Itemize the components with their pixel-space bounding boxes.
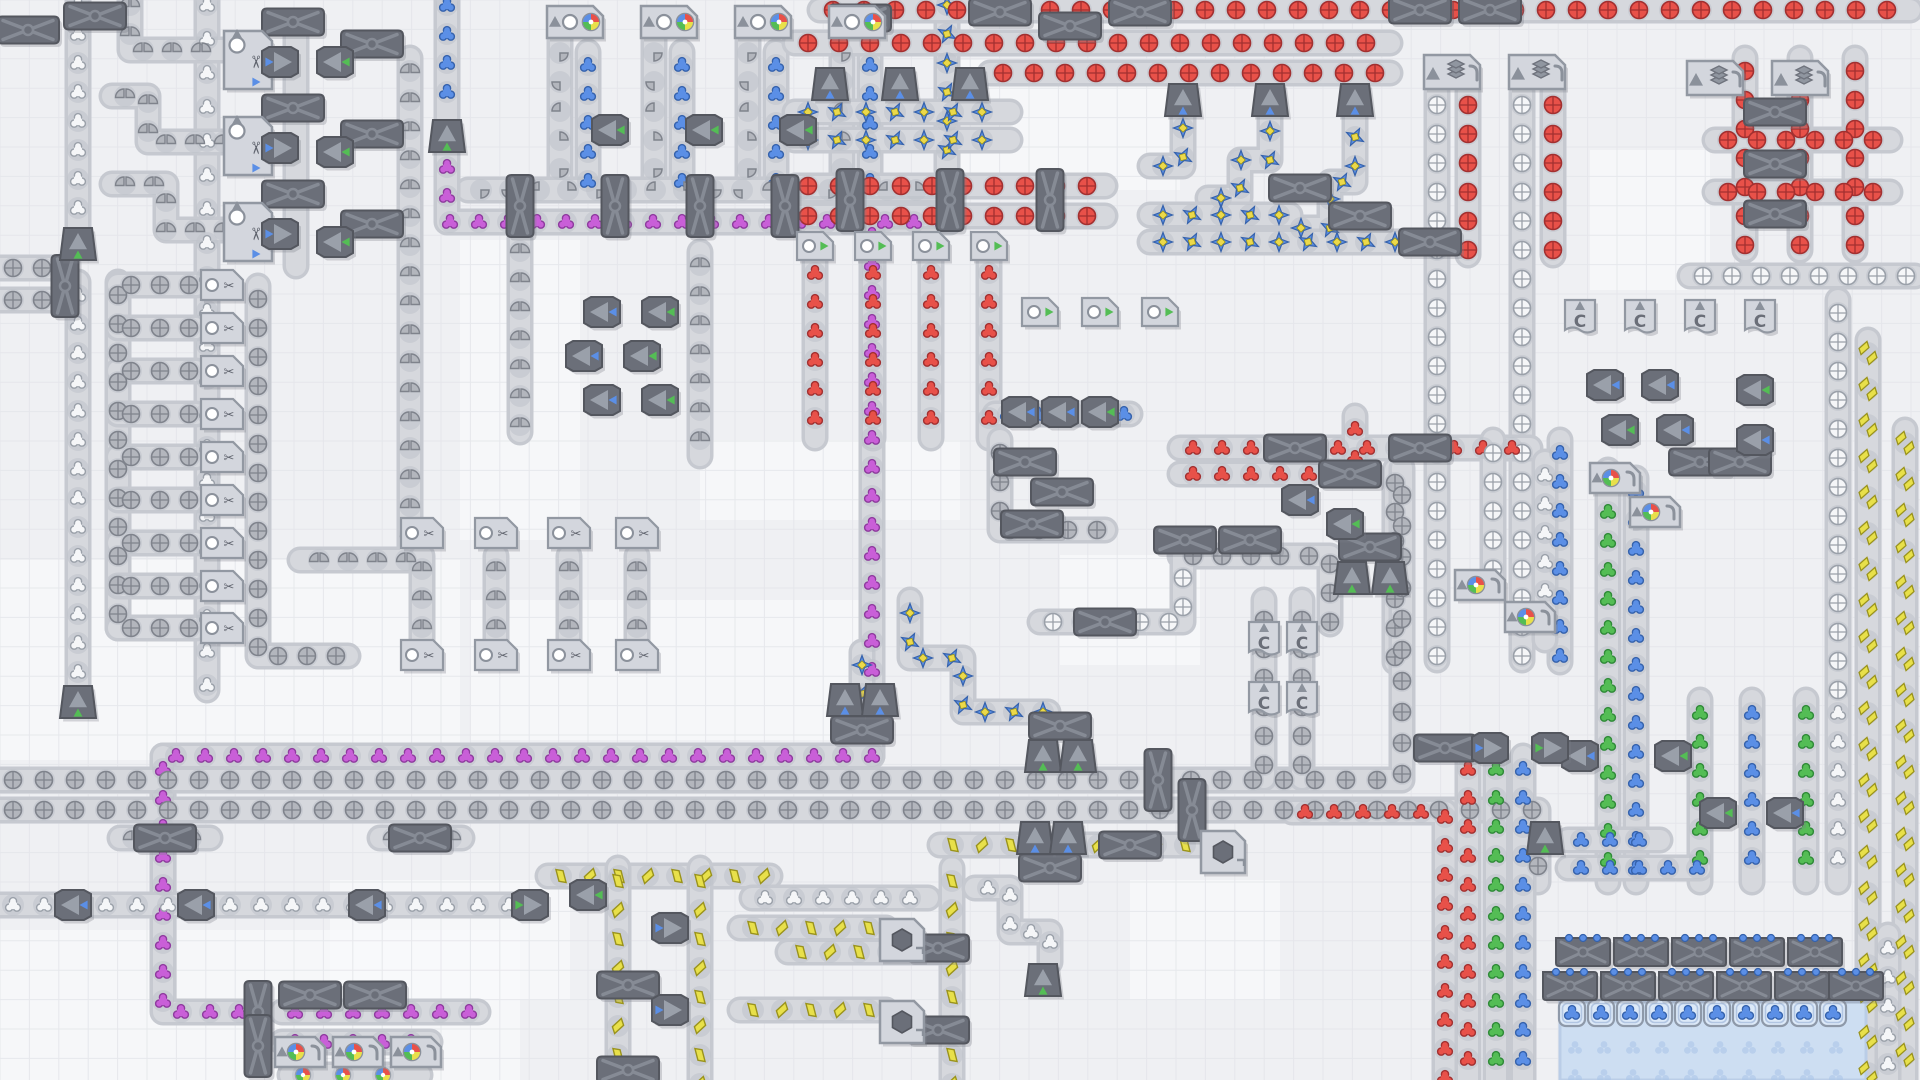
machine-tunnel[interactable] — [862, 684, 901, 720]
machine-stacker[interactable] — [1772, 61, 1831, 99]
machine-balancer[interactable] — [994, 449, 1059, 480]
svg-text:✂: ✂ — [571, 649, 582, 664]
machine-cutter-small[interactable]: ✂ — [201, 613, 246, 647]
machine-balancer[interactable] — [831, 717, 896, 748]
machine-tunnel[interactable] — [827, 684, 866, 720]
machine-cutter-small[interactable]: ✂ — [201, 399, 246, 433]
machine-filter[interactable] — [1532, 733, 1571, 767]
fluid-cell[interactable] — [1675, 1000, 1701, 1026]
machine-filter[interactable] — [1657, 415, 1696, 449]
machine-cutter-small[interactable]: ✂ — [201, 528, 246, 562]
machine-painter-gem[interactable] — [333, 1037, 386, 1071]
svg-text:✂: ✂ — [224, 580, 235, 595]
machine-balancer[interactable] — [1744, 201, 1809, 232]
machine-pump[interactable] — [1659, 969, 1716, 1004]
machine-balancer[interactable] — [279, 982, 344, 1013]
machine-painter-gem[interactable] — [1590, 463, 1643, 497]
machine-balancer[interactable] — [1109, 0, 1174, 29]
machine-pump[interactable] — [1730, 935, 1787, 970]
svg-text:C: C — [1694, 312, 1706, 332]
machine-cutter-small[interactable]: ✂ — [201, 356, 246, 390]
machine-balancer[interactable] — [1459, 0, 1524, 27]
machine-balancer[interactable] — [1039, 13, 1104, 44]
machine-filter[interactable] — [317, 137, 356, 171]
machine-balancer[interactable] — [969, 0, 1034, 29]
machine-crystal-generator[interactable] — [880, 919, 927, 965]
machine-painter[interactable] — [829, 6, 888, 42]
machine-balancer[interactable] — [1029, 713, 1094, 744]
machine-filter[interactable] — [584, 297, 623, 331]
machine-painter-gem[interactable] — [1455, 570, 1508, 604]
svg-text:C: C — [1754, 312, 1766, 332]
svg-text:✂: ✂ — [498, 649, 509, 664]
machine-tunnel[interactable] — [812, 68, 851, 104]
machine-balancer[interactable] — [507, 175, 537, 241]
machine-filter[interactable] — [512, 890, 551, 924]
machine-stacker[interactable] — [1687, 61, 1746, 99]
svg-text:C: C — [1258, 634, 1270, 654]
machine-trash[interactable] — [429, 120, 468, 156]
machine-stacker[interactable] — [1509, 55, 1568, 93]
svg-text:✂: ✂ — [571, 527, 582, 542]
machine-painter-gem[interactable] — [1630, 497, 1683, 531]
machine-balancer[interactable] — [1219, 527, 1284, 558]
machine-balancer[interactable] — [1744, 151, 1809, 182]
machine-filter[interactable] — [1327, 509, 1366, 543]
machine-balancer[interactable] — [837, 169, 867, 235]
machine-tunnel[interactable] — [1252, 84, 1291, 120]
light-patch — [700, 440, 960, 520]
fluid-cell[interactable] — [1791, 1000, 1817, 1026]
machine-cutter-small[interactable]: ✂ — [201, 313, 246, 347]
machine-balancer[interactable] — [602, 175, 632, 241]
svg-text:C: C — [1574, 312, 1586, 332]
factory-map[interactable]: ✂ ✂ ✂ ✂ ✂ ✂ ✂ ✂ ✂ ✂ ✂ ✂ — [0, 0, 1920, 1080]
machine-balancer[interactable] — [1414, 735, 1479, 766]
machine-filter[interactable] — [642, 385, 681, 419]
machine-filter[interactable] — [1737, 425, 1776, 459]
machine-balancer[interactable] — [937, 169, 967, 235]
machine-cutter-small[interactable]: ✂ — [616, 518, 661, 552]
machine-pump[interactable] — [1543, 969, 1600, 1004]
machine-balancer[interactable] — [1269, 175, 1334, 206]
machine-balancer[interactable] — [262, 181, 327, 212]
machine-cutter-small[interactable]: ✂ — [401, 640, 446, 674]
machine-rotator[interactable]: C — [1249, 682, 1282, 718]
machine-painter-gem[interactable] — [1505, 602, 1558, 636]
machine-filter[interactable] — [624, 341, 663, 375]
machine-filter[interactable] — [55, 890, 94, 924]
machine-filter[interactable] — [1700, 798, 1739, 832]
machine-cutter-small[interactable]: ✂ — [548, 518, 593, 552]
fluid-cell[interactable] — [1559, 1000, 1585, 1026]
machine-filter[interactable] — [1642, 370, 1681, 404]
machine-rotator[interactable]: C — [1287, 682, 1320, 718]
machine-balancer[interactable] — [1037, 169, 1067, 235]
svg-text:✂: ✂ — [639, 649, 650, 664]
machine-filter[interactable] — [1282, 485, 1321, 519]
machine-balancer[interactable] — [1001, 511, 1066, 542]
machine-painter-gem[interactable] — [391, 1037, 444, 1071]
machine-filter[interactable] — [317, 47, 356, 81]
game-viewport[interactable]: ✂ ✂ ✂ ✂ ✂ ✂ ✂ ✂ ✂ ✂ ✂ ✂ — [0, 0, 1920, 1080]
fluid-cell[interactable] — [1704, 1000, 1730, 1026]
machine-tunnel[interactable] — [1165, 84, 1204, 120]
machine-filter[interactable] — [652, 913, 691, 947]
machine-cutter-small[interactable]: ✂ — [616, 640, 661, 674]
machine-tunnel[interactable] — [952, 68, 991, 104]
machine-balancer[interactable] — [0, 17, 62, 48]
machine-rotator[interactable]: C — [1287, 622, 1320, 658]
machine-balancer[interactable] — [1389, 435, 1454, 466]
machine-filter[interactable] — [317, 227, 356, 261]
machine-balancer[interactable] — [597, 972, 662, 1003]
svg-text:C: C — [1634, 312, 1646, 332]
machine-filter[interactable] — [1472, 733, 1511, 767]
machine-filter[interactable] — [592, 115, 631, 149]
machine-balancer[interactable] — [1399, 229, 1464, 260]
machine-balancer[interactable] — [344, 982, 409, 1013]
svg-text:✂: ✂ — [224, 322, 235, 337]
svg-text:✂: ✂ — [224, 365, 235, 380]
svg-text:C: C — [1296, 694, 1308, 714]
machine-cutter-small[interactable]: ✂ — [475, 518, 520, 552]
machine-crystal-generator[interactable] — [1201, 831, 1248, 877]
machine-painter-gem[interactable] — [275, 1037, 328, 1071]
machine-balancer[interactable] — [1145, 749, 1175, 815]
machine-balancer[interactable] — [1019, 855, 1084, 886]
machine-tunnel[interactable] — [1025, 740, 1064, 776]
machine-balancer[interactable] — [64, 3, 129, 34]
svg-text:✂: ✂ — [224, 622, 235, 637]
machine-balancer[interactable] — [1031, 479, 1096, 510]
machine-balancer[interactable] — [1264, 435, 1329, 466]
machine-cutter-small[interactable]: ✂ — [475, 640, 520, 674]
machine-cutter-small[interactable]: ✂ — [201, 270, 246, 304]
machine-balancer[interactable] — [134, 825, 199, 856]
machine-filter[interactable] — [1655, 741, 1694, 775]
machine-rotator[interactable]: C — [1565, 300, 1598, 336]
machine-filter[interactable] — [262, 133, 301, 167]
machine-pump[interactable] — [1672, 935, 1729, 970]
machine-pump[interactable] — [1614, 935, 1671, 970]
machine-filter[interactable] — [566, 341, 605, 375]
machine-balancer[interactable] — [389, 825, 454, 856]
light-patch — [470, 600, 870, 740]
machine-cutter-small[interactable]: ✂ — [201, 442, 246, 476]
machine-balancer[interactable] — [262, 95, 327, 126]
machine-balancer[interactable] — [1389, 0, 1454, 27]
machine-pump[interactable] — [1717, 969, 1774, 1004]
machine-balancer[interactable] — [1744, 99, 1809, 130]
machine-filter[interactable] — [1767, 798, 1806, 832]
machine-tunnel[interactable] — [1050, 822, 1089, 858]
fluid-cell[interactable] — [1733, 1000, 1759, 1026]
svg-text:✂: ✂ — [498, 527, 509, 542]
machine-filter[interactable] — [1002, 397, 1041, 431]
machine-balancer[interactable] — [1154, 527, 1219, 558]
machine-filter[interactable] — [262, 219, 301, 253]
fluid-cell[interactable] — [1762, 1000, 1788, 1026]
machine-pump[interactable] — [1775, 969, 1832, 1004]
fluid-cell[interactable] — [1646, 1000, 1672, 1026]
svg-text:✂: ✂ — [224, 537, 235, 552]
machine-balancer[interactable] — [1099, 832, 1164, 863]
machine-cutter-small[interactable]: ✂ — [548, 640, 593, 674]
svg-text:✂: ✂ — [224, 279, 235, 294]
svg-text:✂: ✂ — [639, 527, 650, 542]
machine-crystal-generator[interactable] — [880, 1001, 927, 1047]
machine-filter[interactable] — [570, 880, 609, 914]
machine-trash[interactable] — [1334, 562, 1373, 598]
machine-pump[interactable] — [1601, 969, 1658, 1004]
svg-text:C: C — [1296, 634, 1308, 654]
machine-tunnel[interactable] — [882, 68, 921, 104]
machine-painter[interactable] — [547, 6, 606, 42]
machine-tunnel[interactable] — [1337, 84, 1376, 120]
machine-cutter-small[interactable]: ✂ — [201, 485, 246, 519]
machine-pump[interactable] — [1788, 935, 1845, 970]
machine-filter[interactable] — [1602, 415, 1641, 449]
machine-rotator[interactable]: C — [1685, 300, 1718, 336]
svg-text:✂: ✂ — [224, 494, 235, 509]
machine-tunnel[interactable] — [1060, 740, 1099, 776]
machine-pump[interactable] — [1829, 969, 1886, 1004]
machine-filter[interactable] — [780, 115, 819, 149]
machine-filter[interactable] — [178, 890, 217, 924]
fluid-cell[interactable] — [1617, 1000, 1643, 1026]
machine-trash[interactable] — [60, 686, 99, 722]
svg-text:✂: ✂ — [224, 451, 235, 466]
machine-trash[interactable] — [1372, 562, 1411, 598]
machine-filter[interactable] — [1082, 397, 1121, 431]
machine-trash[interactable] — [60, 228, 99, 264]
machine-filter[interactable] — [1587, 370, 1626, 404]
machine-painter[interactable] — [641, 6, 700, 42]
machine-filter[interactable] — [652, 995, 691, 1029]
machine-filter[interactable] — [686, 115, 725, 149]
machine-cutter-small[interactable]: ✂ — [401, 518, 446, 552]
machine-balancer[interactable] — [772, 175, 802, 241]
machine-pump[interactable] — [1556, 935, 1613, 970]
machine-trash[interactable] — [1025, 964, 1064, 1000]
svg-text:✂: ✂ — [224, 408, 235, 423]
machine-filter[interactable] — [1737, 375, 1776, 409]
svg-text:✂: ✂ — [424, 649, 435, 664]
fluid-cell[interactable] — [1588, 1000, 1614, 1026]
machine-filter[interactable] — [262, 47, 301, 81]
machine-rotator[interactable]: C — [1249, 622, 1282, 658]
machine-balancer[interactable] — [1319, 461, 1384, 492]
machine-balancer[interactable] — [52, 255, 82, 321]
machine-balancer[interactable] — [687, 175, 717, 241]
machine-stacker[interactable] — [1424, 55, 1483, 93]
svg-text:C: C — [1258, 694, 1270, 714]
machine-painter[interactable] — [735, 6, 794, 42]
fluid-cell[interactable] — [1820, 1000, 1846, 1026]
machine-balancer[interactable] — [597, 1057, 662, 1080]
machine-filter[interactable] — [1042, 397, 1081, 431]
machine-filter[interactable] — [349, 890, 388, 924]
machine-rotator[interactable]: C — [1745, 300, 1778, 336]
machine-trash[interactable] — [1527, 822, 1566, 858]
svg-text:✂: ✂ — [424, 527, 435, 542]
machine-cutter-small[interactable]: ✂ — [201, 571, 246, 605]
machine-balancer[interactable] — [245, 1015, 275, 1080]
machine-balancer[interactable] — [1074, 609, 1139, 640]
machine-filter[interactable] — [642, 297, 681, 331]
machine-balancer[interactable] — [262, 9, 327, 40]
machine-balancer[interactable] — [1329, 203, 1394, 234]
machine-rotator[interactable]: C — [1625, 300, 1658, 336]
machine-filter[interactable] — [584, 385, 623, 419]
